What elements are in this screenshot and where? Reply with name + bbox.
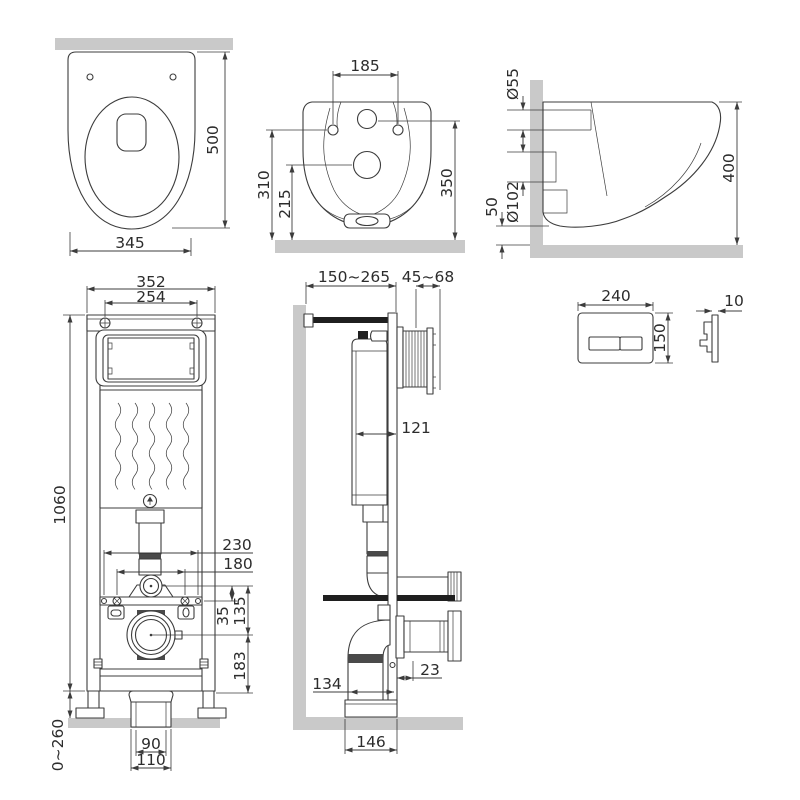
inspection-window-opening bbox=[108, 338, 194, 379]
dim-label-drain-outer: 110 bbox=[136, 751, 166, 769]
dim-label-fixing-inner: 180 bbox=[223, 555, 253, 573]
bowl-opening bbox=[117, 114, 146, 151]
dim-label-offset-c: 183 bbox=[231, 651, 249, 681]
technical-drawing: 500 345 185 310 215 350 bbox=[0, 0, 800, 800]
flush-plate-view: 240 150 10 bbox=[578, 287, 744, 363]
dim-label-width: 345 bbox=[115, 234, 145, 252]
brand-logo-icon bbox=[144, 495, 157, 508]
flush-pipe-side bbox=[367, 522, 388, 554]
rod-wall-anchor bbox=[304, 314, 313, 327]
flush-button-large bbox=[589, 337, 620, 350]
outlet-connector-body bbox=[404, 621, 448, 652]
toilet-top-view: 500 345 bbox=[55, 38, 233, 256]
cistern-neck bbox=[363, 505, 383, 522]
dim-label-base-depth: 146 bbox=[356, 733, 386, 751]
flush-plate-side bbox=[712, 315, 718, 362]
sleeve-mount-plate bbox=[397, 327, 403, 388]
dim-label-sleeve-range: 45~68 bbox=[402, 268, 454, 286]
drain-spigot-opening bbox=[356, 217, 378, 226]
inlet-elbow bbox=[371, 331, 388, 341]
drain-pipe-flare bbox=[129, 691, 173, 702]
cistern bbox=[352, 339, 387, 505]
foot-plate bbox=[76, 708, 104, 718]
dim-label-total-height: 350 bbox=[438, 168, 456, 198]
outlet-connector-ring bbox=[448, 611, 461, 661]
dim-label-outlet-dia: Ø102 bbox=[504, 181, 522, 223]
drain-elbow-base bbox=[345, 700, 397, 717]
mounting-hole bbox=[393, 125, 403, 135]
seat-hinge-hole bbox=[170, 74, 176, 80]
support-rod bbox=[312, 317, 388, 323]
dim-label-drain-offset: 134 bbox=[312, 675, 342, 693]
floor-section bbox=[293, 717, 463, 730]
mounting-hole bbox=[328, 125, 338, 135]
toilet-profile bbox=[543, 102, 721, 227]
wall-section bbox=[530, 80, 543, 247]
rail-hole bbox=[390, 663, 395, 668]
dim-label-length: 500 bbox=[204, 125, 222, 155]
technical-drawing-page: 500 345 185 310 215 350 bbox=[0, 0, 800, 800]
wall-section bbox=[293, 305, 306, 717]
water-inlet-hole bbox=[358, 110, 377, 129]
dim-label-outlet-height: 215 bbox=[276, 189, 294, 219]
fixing-hole bbox=[196, 599, 201, 604]
floor-section bbox=[275, 240, 465, 253]
dim-label-frame-height: 1060 bbox=[51, 485, 69, 524]
floor-section bbox=[530, 245, 743, 258]
drain-pipe bbox=[131, 702, 171, 727]
flush-plate-clips bbox=[700, 322, 712, 352]
toilet-rear-view: 185 310 215 350 bbox=[255, 57, 465, 253]
foot-plate bbox=[198, 708, 226, 718]
dim-label-fixing-outer: 230 bbox=[222, 536, 252, 554]
dim-label-leg-adjust: 0~260 bbox=[49, 719, 67, 771]
dim-label-clearance: 50 bbox=[483, 197, 501, 217]
dim-label-plate-width: 240 bbox=[601, 287, 631, 305]
dim-label-wall-distance: 150~265 bbox=[318, 268, 390, 286]
dim-label-height-overall: 400 bbox=[720, 153, 738, 183]
adjustable-leg bbox=[88, 691, 99, 708]
dim-label-plate-height: 150 bbox=[651, 323, 669, 353]
flush-pipe bbox=[139, 523, 161, 554]
frame-side-view: 150~265 45~68 121 134 23 146 bbox=[293, 268, 463, 754]
dim-label-offset-b: 135 bbox=[231, 596, 249, 626]
dim-label-inlet-dia: Ø55 bbox=[504, 68, 522, 100]
bracket-bar bbox=[323, 595, 388, 601]
dim-label-bolt-spacing: 254 bbox=[136, 288, 166, 306]
dim-label-depth: 121 bbox=[401, 419, 431, 437]
seat-hinge-hole bbox=[87, 74, 93, 80]
dim-label-offset-a: 35 bbox=[214, 606, 232, 626]
frame-front-view: 352 254 1060 0~260 230 180 35 135 183 90… bbox=[49, 273, 253, 771]
adjustable-leg bbox=[203, 691, 214, 708]
flush-bend bbox=[367, 573, 449, 598]
fixing-hole bbox=[102, 599, 107, 604]
drain-fitting bbox=[378, 605, 390, 620]
insulation-panel bbox=[100, 390, 202, 508]
dim-label-gap: 23 bbox=[420, 661, 440, 679]
dim-label-bowl-height: 310 bbox=[255, 170, 273, 200]
sleeve-flange bbox=[427, 328, 433, 394]
bracket-bar bbox=[397, 595, 455, 601]
rail-clip bbox=[94, 659, 208, 668]
outlet-hole bbox=[354, 152, 381, 179]
dim-label-plate-thickness: 10 bbox=[724, 292, 744, 310]
toilet-side-view: Ø55 Ø102 50 400 bbox=[483, 68, 743, 259]
flush-button-small bbox=[620, 337, 642, 350]
outlet-connector-flange bbox=[396, 616, 404, 658]
wall-section bbox=[55, 38, 233, 50]
flush-pipe-fitting bbox=[136, 510, 164, 523]
filler-cap bbox=[358, 331, 368, 339]
dim-label-hole-spacing: 185 bbox=[350, 57, 380, 75]
